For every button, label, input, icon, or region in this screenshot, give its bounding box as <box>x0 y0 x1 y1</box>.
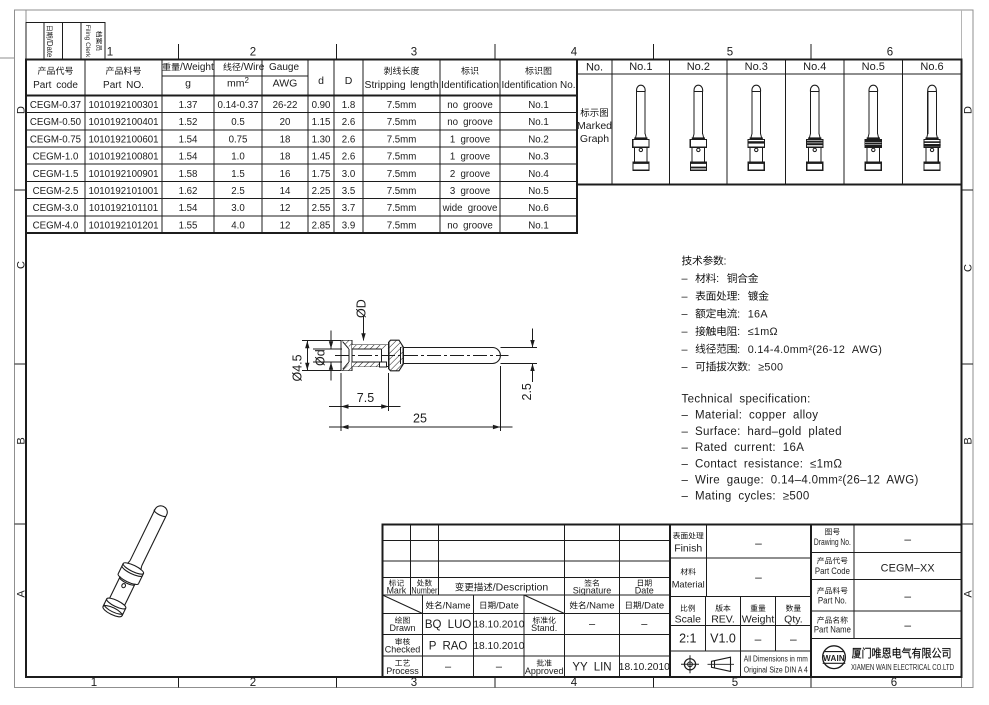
svg-text:Weight: Weight <box>742 614 775 626</box>
svg-text:No.3: No.3 <box>745 61 768 73</box>
svg-text:A: A <box>963 590 975 598</box>
svg-text:12: 12 <box>280 220 291 231</box>
svg-text:–: – <box>682 361 688 373</box>
svg-text:2.5: 2.5 <box>231 186 244 197</box>
svg-text:–: – <box>641 619 648 631</box>
svg-text:4: 4 <box>571 677 578 689</box>
svg-text:7.5mm: 7.5mm <box>387 169 417 180</box>
svg-text:Part code: Part code <box>33 80 78 91</box>
svg-text:Stripping length: Stripping length <box>365 80 439 91</box>
svg-text:1010192100601: 1010192100601 <box>88 134 158 145</box>
svg-text:2.5: 2.5 <box>520 383 534 400</box>
svg-text:–: – <box>755 632 762 646</box>
svg-text:0.90: 0.90 <box>312 100 331 111</box>
svg-text:Filing Clerk: Filing Clerk <box>84 25 91 58</box>
svg-text:D: D <box>345 75 353 87</box>
svg-text:/Description: /Description <box>493 582 549 594</box>
svg-text:/Name: /Name <box>443 600 471 611</box>
svg-text:3.0: 3.0 <box>342 169 356 180</box>
svg-text:No.6: No.6 <box>528 203 548 214</box>
svg-text:26-22: 26-22 <box>273 100 298 111</box>
svg-text:1010192101201: 1010192101201 <box>88 220 158 231</box>
svg-text:No.1: No.1 <box>528 117 548 128</box>
svg-text:Part NO.: Part NO. <box>103 80 144 91</box>
svg-text:YY LIN: YY LIN <box>572 662 611 674</box>
svg-text:Signature: Signature <box>573 586 612 596</box>
svg-text:V1.0: V1.0 <box>710 632 736 646</box>
svg-text:1010192101101: 1010192101101 <box>89 203 158 214</box>
svg-text:CEGM-1.0: CEGM-1.0 <box>33 152 79 163</box>
svg-text:1010192100801: 1010192100801 <box>88 152 158 163</box>
svg-text:: 16A: : 16A <box>737 308 768 320</box>
svg-text:3.9: 3.9 <box>342 220 355 231</box>
svg-text:–: – <box>904 618 911 632</box>
svg-text:– Contact resistance: ≤1mΩ: – Contact resistance: ≤1mΩ <box>682 458 843 470</box>
svg-text:1: 1 <box>107 47 113 59</box>
svg-text:1.54: 1.54 <box>179 134 198 145</box>
svg-text::: : <box>737 291 740 303</box>
svg-text:Identification: Identification <box>441 80 499 91</box>
svg-text:D: D <box>963 106 975 114</box>
svg-text:5: 5 <box>727 47 733 59</box>
svg-text:P RAO: P RAO <box>429 641 468 653</box>
svg-text:Date: Date <box>635 586 654 596</box>
svg-text:All Dimensions in mm: All Dimensions in mm <box>744 654 808 663</box>
svg-text:: ≤1mΩ: : ≤1mΩ <box>737 326 778 338</box>
svg-text:1010192100401: 1010192100401 <box>88 117 158 128</box>
svg-text:/Date: /Date <box>641 600 664 611</box>
svg-text:3.0: 3.0 <box>231 203 245 214</box>
svg-text:1.58: 1.58 <box>179 169 198 180</box>
svg-text:1.30: 1.30 <box>312 134 331 145</box>
svg-text:18: 18 <box>280 152 291 163</box>
svg-text:2.55: 2.55 <box>312 203 331 214</box>
svg-text:CEGM-3.0: CEGM-3.0 <box>33 203 79 214</box>
svg-text:g: g <box>185 78 191 90</box>
svg-text:CEGM–XX: CEGM–XX <box>881 563 935 575</box>
svg-text:B: B <box>963 437 975 444</box>
svg-text:7.5mm: 7.5mm <box>387 186 417 197</box>
svg-text:14: 14 <box>280 186 291 197</box>
svg-text:No.4: No.4 <box>803 61 826 73</box>
svg-text:/Date: /Date <box>496 600 519 611</box>
svg-text:7.5mm: 7.5mm <box>387 117 417 128</box>
svg-text:/Weight: /Weight <box>180 62 214 73</box>
svg-text:1.15: 1.15 <box>312 117 331 128</box>
svg-text:1.55: 1.55 <box>179 220 198 231</box>
svg-text:Finish: Finish <box>674 543 702 555</box>
svg-text:REV.: REV. <box>711 614 735 626</box>
svg-text:1.52: 1.52 <box>179 117 198 128</box>
svg-text:1.75: 1.75 <box>312 169 331 180</box>
svg-text:: ≥500: : ≥500 <box>748 361 784 373</box>
svg-text:–: – <box>904 589 911 603</box>
svg-text:–: – <box>682 273 688 285</box>
svg-text:–: – <box>445 661 452 673</box>
svg-text:3: 3 <box>411 677 417 689</box>
svg-text:No.1: No.1 <box>528 220 548 231</box>
svg-text:7.5: 7.5 <box>357 391 374 405</box>
svg-text:No.3: No.3 <box>528 152 548 163</box>
svg-text:Identification No.: Identification No. <box>502 80 576 91</box>
svg-text:Marked: Marked <box>577 120 612 132</box>
svg-text:Stand.: Stand. <box>531 623 557 633</box>
svg-text:1 groove: 1 groove <box>450 134 490 145</box>
svg-text:CEGM-1.5: CEGM-1.5 <box>33 169 79 180</box>
svg-text:/Wire Gauge: /Wire Gauge <box>241 62 300 73</box>
svg-text:ØD: ØD <box>355 299 369 318</box>
svg-text:Part Code: Part Code <box>815 566 850 576</box>
svg-text:4: 4 <box>571 47 578 59</box>
svg-text:7.5mm: 7.5mm <box>387 152 417 163</box>
svg-text:Technical specification:: Technical specification: <box>682 394 811 406</box>
svg-text:1.62: 1.62 <box>179 186 198 197</box>
svg-text:2: 2 <box>250 47 256 59</box>
svg-text:16: 16 <box>280 169 291 180</box>
svg-text:– Surface: hard–gold plated: – Surface: hard–gold plated <box>682 426 842 438</box>
svg-text:1010192101001: 1010192101001 <box>88 186 158 197</box>
svg-text:WAIN: WAIN <box>823 654 845 663</box>
svg-text:/Name: /Name <box>587 600 615 611</box>
svg-text:: 0.14-4.0mm²(26-12 AWG): : 0.14-4.0mm²(26-12 AWG) <box>737 344 882 356</box>
svg-text:AWG: AWG <box>273 78 298 90</box>
svg-text:1010192100301: 1010192100301 <box>88 100 158 111</box>
svg-text:1: 1 <box>91 677 97 689</box>
svg-text:Original Size DIN A 4: Original Size DIN A 4 <box>744 665 809 674</box>
svg-text:Graph: Graph <box>580 133 609 145</box>
svg-text:No.2: No.2 <box>687 61 710 73</box>
svg-text:3.5: 3.5 <box>342 186 355 197</box>
svg-text:C: C <box>963 264 975 272</box>
svg-text:1.37: 1.37 <box>179 100 198 111</box>
svg-text:12: 12 <box>280 203 291 214</box>
svg-text:1.54: 1.54 <box>179 152 198 163</box>
svg-text:–: – <box>904 532 911 546</box>
svg-text:/Date: /Date <box>45 39 54 58</box>
svg-text:3.7: 3.7 <box>342 203 355 214</box>
svg-text:7.5mm: 7.5mm <box>387 100 417 111</box>
svg-text::: : <box>716 273 719 285</box>
svg-text:1010192100901: 1010192100901 <box>88 169 158 180</box>
svg-text:XIAMEN WAIN ELECTRICAL CO.LTD: XIAMEN WAIN ELECTRICAL CO.LTD <box>851 663 954 672</box>
svg-text:no groove: no groove <box>447 117 493 128</box>
svg-text:3: 3 <box>411 47 417 59</box>
svg-text:Part No.: Part No. <box>818 596 847 606</box>
svg-text:18.10.2010: 18.10.2010 <box>473 620 524 631</box>
svg-text:Checked: Checked <box>385 645 421 655</box>
svg-text:–: – <box>682 326 688 338</box>
svg-text:2 groove: 2 groove <box>450 169 490 180</box>
svg-text:CEGM-0.37: CEGM-0.37 <box>30 100 81 111</box>
svg-text:CEGM-4.0: CEGM-4.0 <box>33 220 79 231</box>
svg-text:2.6: 2.6 <box>342 134 355 145</box>
svg-text:Scale: Scale <box>675 614 701 626</box>
svg-text:– Wire gauge: 0.14–4.0mm²(26–: – Wire gauge: 0.14–4.0mm²(26–12 AWG) <box>682 475 919 487</box>
svg-text:No.1: No.1 <box>528 100 548 111</box>
svg-text:C: C <box>16 261 28 269</box>
svg-text:– Mating cycles: ≥500: – Mating cycles: ≥500 <box>682 491 810 503</box>
svg-text:CEGM-2.5: CEGM-2.5 <box>33 186 79 197</box>
svg-text:No.: No. <box>586 62 603 74</box>
svg-text:–: – <box>755 536 762 550</box>
svg-text:– Rated current: 16A: – Rated current: 16A <box>682 442 805 454</box>
svg-text:A: A <box>16 590 28 598</box>
svg-text:0.14-0.37: 0.14-0.37 <box>218 100 259 111</box>
svg-text:1.8: 1.8 <box>342 100 355 111</box>
svg-text:Number: Number <box>411 586 437 596</box>
svg-text:0.5: 0.5 <box>231 117 244 128</box>
svg-text:No.4: No.4 <box>528 169 549 180</box>
svg-text:Part Name: Part Name <box>814 625 851 635</box>
svg-text:Qty.: Qty. <box>784 614 802 626</box>
svg-text:2.6: 2.6 <box>342 117 355 128</box>
svg-text:–: – <box>496 661 503 673</box>
svg-text:CEGM-0.50: CEGM-0.50 <box>30 117 82 128</box>
svg-text::: : <box>724 256 727 268</box>
svg-text:No.2: No.2 <box>528 134 548 145</box>
svg-text:1.5: 1.5 <box>231 169 244 180</box>
svg-text:Drawing No.: Drawing No. <box>814 537 851 547</box>
svg-text:5: 5 <box>732 677 738 689</box>
svg-text:–: – <box>589 619 596 631</box>
svg-text:2.25: 2.25 <box>312 186 331 197</box>
svg-text:Ød: Ød <box>314 349 328 366</box>
svg-text:20: 20 <box>280 117 291 128</box>
svg-text:6: 6 <box>891 677 897 689</box>
svg-text:2.6: 2.6 <box>342 152 355 163</box>
svg-text:– Material: copper alloy: – Material: copper alloy <box>682 410 819 422</box>
svg-text:4.0: 4.0 <box>231 220 245 231</box>
svg-text:No.5: No.5 <box>528 186 548 197</box>
svg-text:25: 25 <box>413 412 427 426</box>
svg-text:BQ LUO: BQ LUO <box>425 619 472 631</box>
svg-text:1.54: 1.54 <box>179 203 198 214</box>
svg-text:–: – <box>682 308 688 320</box>
svg-text:18.10.2010: 18.10.2010 <box>473 641 524 652</box>
svg-text:Process: Process <box>386 666 419 676</box>
svg-text:Approved: Approved <box>525 666 564 676</box>
svg-text:Drawn: Drawn <box>389 623 415 633</box>
svg-text:1.45: 1.45 <box>312 152 331 163</box>
svg-text:7.5mm: 7.5mm <box>387 134 417 145</box>
svg-text:No.6: No.6 <box>920 61 943 73</box>
svg-text:7.5mm: 7.5mm <box>387 203 417 214</box>
svg-text:7.5mm: 7.5mm <box>387 220 417 231</box>
svg-text:No.5: No.5 <box>862 61 885 73</box>
svg-text:2.85: 2.85 <box>312 220 331 231</box>
svg-text:2: 2 <box>250 677 256 689</box>
svg-text:d: d <box>318 75 324 87</box>
svg-text:3 groove: 3 groove <box>450 186 490 197</box>
svg-text:Mark: Mark <box>387 586 407 596</box>
svg-text:no groove: no groove <box>447 100 493 111</box>
svg-text:–: – <box>682 291 688 303</box>
svg-text:No.1: No.1 <box>629 61 652 73</box>
svg-text:1 groove: 1 groove <box>450 152 490 163</box>
svg-text:B: B <box>16 437 28 444</box>
svg-text:18.10.2010: 18.10.2010 <box>619 662 670 673</box>
svg-text:6: 6 <box>887 47 893 59</box>
svg-text:18: 18 <box>280 134 291 145</box>
svg-text:–: – <box>682 344 688 356</box>
svg-text:Ø4.5: Ø4.5 <box>291 354 305 381</box>
svg-text:no groove: no groove <box>447 220 493 231</box>
svg-text:wide groove: wide groove <box>442 203 498 214</box>
svg-text:2:1: 2:1 <box>679 632 696 646</box>
svg-text:1.0: 1.0 <box>231 152 245 163</box>
svg-text:CEGM-0.75: CEGM-0.75 <box>30 134 81 145</box>
svg-text:0.75: 0.75 <box>229 134 248 145</box>
svg-text:–: – <box>790 632 797 646</box>
svg-text:Material: Material <box>672 580 705 591</box>
svg-text:–: – <box>755 570 762 584</box>
